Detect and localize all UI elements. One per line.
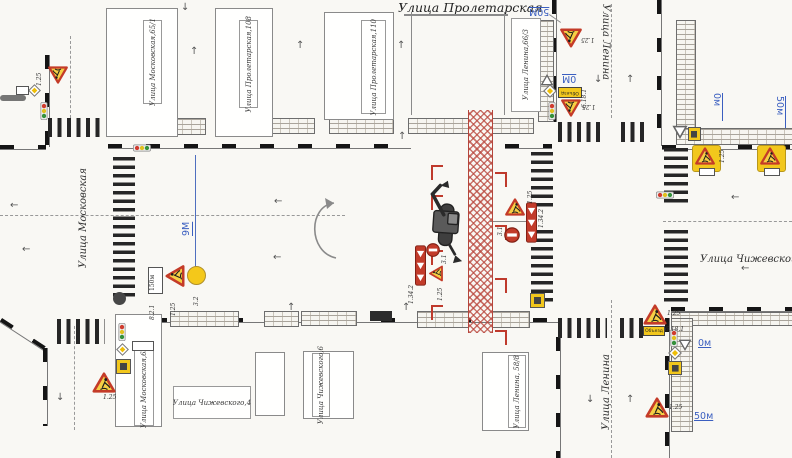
sign-code-label: 1.25: [36, 64, 44, 86]
building-label: Улица Ленина, 58/8: [513, 355, 521, 428]
building-label: Улица Чижевского,6: [317, 346, 325, 424]
sign-code-label: 8.2.1: [149, 296, 157, 320]
distance-marker: 0М: [562, 73, 576, 84]
traffic-light-icon: [133, 144, 151, 152]
direction-arrow-icon: ↑: [287, 302, 295, 313]
sign-code-label: 3.1: [497, 222, 504, 236]
barrier-bracket-icon: [431, 305, 443, 320]
direction-arrow-icon: ←: [22, 244, 30, 255]
direction-arrow-icon: ↓: [56, 392, 64, 403]
temp-signal-icon: [187, 266, 206, 285]
detour-plate-text: Объезд: [645, 329, 663, 334]
traffic-scheme-canvas: Улица Московская,65/1 Улица Пролетарская…: [0, 0, 792, 458]
building-label-box: Улица Пролетарская,108: [239, 20, 258, 108]
barrier-bracket-icon: [495, 278, 507, 293]
building-label: Улица Пролетарская,110: [370, 19, 378, 116]
sign-code-label: 1.25: [527, 186, 534, 204]
direction-arrow-icon: ↑: [626, 394, 634, 405]
scan-smudge: [0, 95, 26, 101]
dimension-line: [195, 155, 196, 267]
distance-marker: 50М: [529, 6, 549, 17]
direction-arrow-icon: ↑: [397, 40, 405, 51]
street-name-lenina-south: Улица Ленина: [601, 366, 615, 430]
roadworks-sign-icon: [560, 28, 582, 48]
crosswalk-sign-icon: [688, 127, 701, 141]
direction-arrow-icon: ←: [10, 200, 18, 211]
building-label-box: Улица Чижевского,4: [173, 386, 251, 419]
distance-marker: 0м: [698, 338, 711, 349]
crosswalk: [48, 118, 105, 137]
sign-code-label: 1.25: [581, 36, 594, 43]
traffic-light-icon: [118, 323, 126, 341]
distance-marker: 9М: [181, 212, 193, 236]
page-title: Улица Пролетарская: [398, 0, 518, 15]
direction-arrow-icon: ↑: [626, 74, 634, 85]
traffic-light-icon: [656, 191, 674, 199]
sign-code-label: 1.25: [582, 103, 595, 110]
sign-plate: [699, 168, 715, 176]
building: [106, 8, 178, 137]
building-label-box: Улица Московская,65/1: [143, 20, 162, 104]
roadworks-sign-icon: [645, 397, 669, 418]
road-edge: [657, 0, 662, 146]
sign-code-label: 1.34.2: [408, 282, 415, 304]
direction-arrow-icon: ↑: [190, 46, 198, 57]
sign-code-label: 1.25: [667, 310, 680, 317]
sidewalk-bricks: [408, 118, 469, 134]
distance-marker: 0м: [711, 93, 723, 121]
sign-code-label: 3.2: [193, 290, 201, 306]
building-label: Улица Чижевского,4: [173, 399, 251, 407]
roadworks-sign-icon: [643, 304, 667, 325]
barrier-bracket-icon: [495, 172, 507, 187]
barrier-bracket-icon: [495, 330, 507, 345]
road-edge: [43, 348, 48, 426]
crosswalk-sign-icon: [530, 293, 545, 308]
direction-arrow-icon: ←: [731, 192, 739, 203]
roadworks-sign-icon: [760, 147, 780, 165]
building-label-box: Улица Московская,63: [134, 350, 154, 426]
sidewalk-bricks: [492, 118, 534, 134]
building-label-box: Улица Ленина, 58/8: [508, 355, 526, 428]
roadworks-sign-icon: [48, 66, 68, 84]
road-edge: [504, 12, 505, 115]
direction-arrow-icon: ←: [273, 252, 281, 263]
road-edge: [556, 337, 561, 458]
sidewalk-bricks: [417, 311, 469, 328]
sidewalk-block: [370, 311, 392, 321]
sign-plate: [132, 341, 154, 351]
chevron-board-icon: [415, 242, 426, 289]
sign-code-label: 3.1: [441, 250, 448, 264]
direction-arrow-icon: ↑: [398, 131, 406, 142]
crosswalk: [113, 157, 135, 299]
crosswalk: [621, 122, 647, 142]
direction-arrow-icon: ←: [741, 263, 749, 274]
roadworks-sign-icon: [92, 372, 116, 393]
detour-plate: Объезд: [558, 87, 582, 98]
road-edge: [411, 12, 412, 115]
sidewalk-bricks: [676, 20, 696, 130]
street-name-lenina-north: Улица Ленина: [597, 4, 611, 68]
roadworks-sign-icon: [561, 99, 581, 117]
crosswalk-sign-icon: [116, 359, 131, 374]
detour-plate: Объезд: [643, 326, 665, 336]
sign-code-label: 1.25: [719, 147, 726, 163]
road-edge: [108, 144, 411, 149]
direction-arrow-icon: ↓: [181, 2, 189, 13]
building-label-box: Улица Пролетарская,110: [361, 20, 386, 114]
roadworks-sign-icon: [505, 198, 525, 216]
road-edge: [0, 145, 46, 150]
u-turn-arrow-icon: [292, 196, 344, 264]
crosswalk: [664, 230, 688, 302]
distance-plate: 150м: [148, 267, 163, 294]
centerline: [611, 4, 612, 118]
sign-code-label: 1.25: [669, 404, 682, 411]
sidewalk-bricks: [492, 311, 530, 328]
sign-plate: [16, 86, 29, 95]
sign-code-label: 1.34.2: [538, 206, 545, 228]
traffic-light-icon: [548, 102, 556, 120]
sign-code-label: 1.25: [437, 283, 444, 301]
crosswalk: [558, 318, 607, 338]
title-underline: [404, 14, 508, 16]
building-label: Улица Ленина,66/3: [522, 29, 530, 100]
no-entry-sign-icon: [504, 227, 520, 243]
sign-code-label: 1.25: [103, 394, 116, 401]
traffic-light-icon: [40, 102, 48, 120]
sidewalk-bricks: [170, 311, 239, 327]
direction-arrow-icon: ↓: [594, 74, 602, 85]
distance-plate-text: 150м: [149, 268, 160, 291]
crosswalk-sign-icon: [668, 361, 682, 375]
priority-diamond-icon: [543, 84, 557, 98]
priority-diamond-icon: [668, 346, 682, 360]
sidewalk-bricks: [301, 311, 357, 326]
building-label: Улица Пролетарская,108: [245, 16, 253, 113]
direction-arrow-icon: ←: [274, 196, 282, 207]
dark-circle: [113, 292, 126, 305]
distance-marker: 50м: [694, 411, 713, 422]
sign-code-label: 6.18.1: [665, 326, 684, 333]
road-edge: [0, 318, 49, 353]
detour-plate-text: Объезд: [561, 90, 579, 95]
centerline: [663, 221, 792, 222]
direction-arrow-icon: ↑: [296, 40, 304, 51]
sign-code-label: 1.25: [170, 296, 178, 316]
building: [255, 352, 285, 416]
crosswalk: [558, 122, 602, 142]
building-label: Улица Московская,63: [140, 347, 148, 428]
building-label: Улица Московская,65/1: [149, 18, 157, 106]
direction-arrow-icon: ↓: [586, 394, 594, 405]
building-label-box: Улица Чижевского,6: [312, 353, 330, 417]
give-way-icon: [672, 125, 688, 139]
no-entry-sign-icon: [426, 243, 440, 257]
sidewalk-bricks: [329, 118, 394, 134]
crosswalk: [57, 319, 105, 344]
distance-marker: 50м: [774, 96, 786, 128]
sidewalk-bricks: [264, 311, 299, 327]
roadworks-sign-icon: [695, 147, 715, 165]
sign-plate: [764, 168, 780, 176]
centerline: [70, 36, 71, 118]
priority-diamond-icon: [116, 343, 129, 356]
roadworks-sign-icon: [429, 266, 444, 282]
street-name-moskovskaya: Улица Московская: [78, 176, 92, 268]
chevron-board-icon: [526, 200, 537, 245]
roadworks-sign-icon: [165, 265, 185, 287]
building-label-box: Улица Ленина,66/3: [511, 18, 541, 112]
road-edge: [505, 144, 552, 149]
